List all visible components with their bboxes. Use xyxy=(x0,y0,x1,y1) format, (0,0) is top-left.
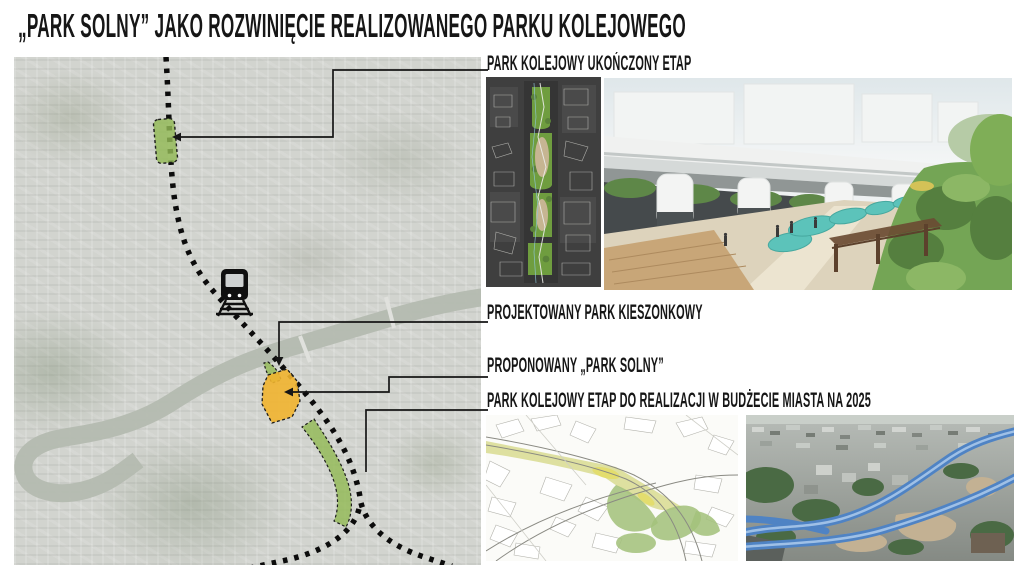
presentation-slide: „PARK SOLNY” JAKO ROZWINIĘCIE REALIZOWAN… xyxy=(0,0,1024,576)
label-completed-stage: PARK KOLEJOWY UKOŃCZONY ETAP xyxy=(487,52,691,76)
dark-roof xyxy=(971,533,1005,553)
image-plan-stage-2025 xyxy=(486,415,738,561)
label-pocket-park: PROJEKTOWANY PARK KIESZONKOWY xyxy=(487,301,703,325)
render-illustration xyxy=(604,78,1012,290)
haze xyxy=(746,415,1014,424)
aerial-2025-illustration xyxy=(746,415,1014,561)
label-park-solny: PROPONOWANY „PARK SOLNY” xyxy=(487,354,664,378)
masterplan-illustration xyxy=(486,77,601,287)
plan-2025-illustration xyxy=(486,415,738,561)
label-stage-2025: PARK KOLEJOWY ETAP DO REALIZACJI W BUDŻE… xyxy=(487,389,871,413)
plaza-area xyxy=(535,137,549,177)
page-title: „PARK SOLNY” JAKO ROZWINIĘCIE REALIZOWAN… xyxy=(18,7,686,45)
image-aerial-stage-2025 xyxy=(746,415,1014,561)
aerial-map xyxy=(14,57,481,565)
yellow-planting xyxy=(910,181,934,191)
image-masterplan-dark xyxy=(486,77,601,287)
image-render-completed-park xyxy=(604,78,1012,290)
